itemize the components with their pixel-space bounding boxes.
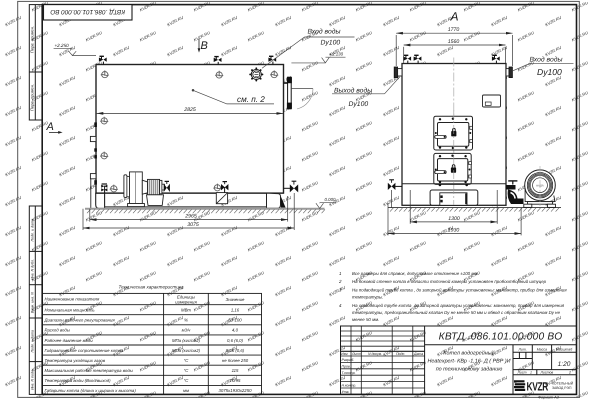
svg-text:по техническому заданию: по техническому заданию	[436, 366, 503, 372]
svg-text:ЗАВОД РЭП: ЗАВОД РЭП	[552, 386, 572, 390]
svg-text:мм: мм	[183, 388, 189, 393]
svg-text:Изм: Изм	[341, 352, 348, 356]
svg-text:Масштаб: Масштаб	[556, 347, 573, 351]
svg-text:см. п. 2: см. п. 2	[237, 95, 265, 104]
svg-text:МПа (кгс/см2): МПа (кгс/см2)	[172, 338, 201, 343]
svg-text:2965: 2965	[184, 214, 197, 220]
svg-text:1770: 1770	[448, 27, 460, 33]
svg-text:3075: 3075	[187, 222, 199, 228]
svg-text:Масса: Масса	[537, 347, 547, 351]
svg-text:А: А	[46, 121, 54, 133]
svg-text:Подп.: Подп.	[396, 352, 405, 356]
svg-text:115: 115	[232, 368, 239, 373]
svg-text:Т.контр.: Т.контр.	[342, 371, 356, 375]
svg-text:температуры, предохранительный: температуры, предохранительный клапан Dу…	[352, 310, 561, 315]
svg-text:Лист: Лист	[351, 352, 361, 356]
svg-text:Dy100: Dy100	[321, 40, 341, 47]
svg-text:Габариты котла (длина х ширина: Габариты котла (длина х ширина х высота)	[45, 388, 137, 393]
svg-text:70/95: 70/95	[230, 378, 241, 383]
svg-text:4,0: 4,0	[232, 328, 239, 333]
svg-text:Все размеры для справок, допус: Все размеры для справок, допустимое откл…	[352, 271, 479, 276]
svg-text:Инв. N подл.: Инв. N подл.	[31, 369, 35, 390]
svg-text:1560: 1560	[448, 39, 460, 45]
svg-text:Пров.: Пров.	[342, 364, 351, 368]
svg-text:Вход воды: Вход воды	[530, 56, 563, 63]
svg-text:не более 250: не более 250	[222, 358, 249, 363]
svg-text:Выход воды: Выход воды	[334, 87, 372, 94]
svg-text:Взам. инв. N: Взам. инв. N	[31, 292, 35, 313]
svg-text:N докум.: N докум.	[368, 352, 382, 356]
svg-text:Диапазон рабочего регулировани: Диапазон рабочего регулирования	[44, 318, 116, 323]
svg-text:Подп. и дата: Подп. и дата	[31, 219, 35, 242]
svg-text:Листов: Листов	[540, 371, 554, 375]
svg-text:Максимальная рабочая температу: Максимальная рабочая температура воды	[45, 368, 134, 373]
svg-text:Лист: Лист	[517, 371, 527, 375]
svg-text:+2.130: +2.130	[330, 51, 344, 56]
svg-text:Утв.: Утв.	[342, 390, 350, 394]
svg-text:Вход воды: Вход воды	[308, 29, 341, 36]
svg-text:1: 1	[530, 371, 532, 375]
svg-text:Гидравлическое сопротивление к: Гидравлическое сопротивление котла	[45, 348, 125, 353]
svg-text:измерения: измерения	[175, 300, 197, 305]
svg-text:2: 2	[338, 279, 342, 284]
svg-text:Наименование показателя: Наименование показателя	[45, 297, 101, 302]
svg-text:Значение: Значение	[226, 297, 245, 302]
svg-text:КОТЕЛЬНЫЙ: КОТЕЛЬНЫЙ	[552, 380, 574, 385]
svg-text:1:20: 1:20	[558, 361, 571, 368]
svg-text:0.000: 0.000	[325, 197, 337, 202]
svg-text:3075х1930х2250: 3075х1930х2250	[219, 388, 253, 393]
svg-text:температуры.: температуры.	[352, 295, 383, 300]
svg-text:1930: 1930	[448, 227, 460, 233]
svg-text:Расход воды: Расход воды	[45, 328, 71, 333]
svg-text:Техническая характеристика: Техническая характеристика	[118, 284, 183, 289]
svg-text:Подп. и дата: Подп. и дата	[31, 330, 35, 353]
svg-text:0,06 (0,6): 0,06 (0,6)	[226, 348, 245, 353]
svg-text:Температура воды (Вход/выход): Температура воды (Вход/выход)	[45, 378, 112, 383]
svg-text:KVZR: KVZR	[527, 379, 549, 393]
svg-text:КВТД .086.101.00.000 ВО: КВТД .086.101.00.000 ВО	[439, 332, 563, 343]
svg-text:Н.контр.: Н.контр.	[342, 384, 357, 388]
svg-text:Перв. примен.: Перв. примен.	[30, 84, 35, 111]
svg-text:Температура уходящих газов: Температура уходящих газов	[45, 358, 106, 363]
svg-text:Номинальная мощность: Номинальная мощность	[45, 308, 96, 313]
svg-text:МПа (кгс/см2): МПа (кгс/см2)	[172, 348, 201, 353]
svg-text:50-100: 50-100	[228, 318, 242, 323]
svg-text:Dy100: Dy100	[537, 67, 562, 77]
svg-text:Лит.: Лит.	[517, 347, 526, 351]
svg-text:менее 50 мм.: менее 50 мм.	[352, 317, 379, 322]
svg-text:На подводящей трубе котла ,: На подводящей трубе котла , до запорной …	[352, 288, 567, 293]
svg-text:А: А	[450, 10, 459, 24]
svg-text:м3/ч: м3/ч	[182, 328, 192, 333]
svg-text:+2.250: +2.250	[55, 43, 70, 48]
svg-text:Рабочее давление воды: Рабочее давление воды	[45, 338, 94, 343]
svg-text:На боковой стенке котла в обла: На боковой стенке котла в области топочн…	[352, 279, 547, 284]
svg-text:МВт: МВт	[181, 308, 191, 313]
svg-text:0,6 (6,0): 0,6 (6,0)	[227, 338, 244, 343]
svg-text:Разраб.: Разраб.	[342, 358, 355, 362]
svg-text:Дата: Дата	[413, 352, 423, 356]
svg-text:1,16: 1,16	[231, 308, 240, 313]
svg-text:На отводящей трубе котла ,до з: На отводящей трубе котла ,до запорной ар…	[352, 303, 565, 308]
svg-text:В: В	[201, 40, 208, 52]
svg-text:2: 2	[568, 371, 571, 375]
svg-text:Heatexpert- КВр -1,16- Д ( РВР: Heatexpert- КВр -1,16- Д ( РВР )И	[427, 358, 510, 364]
svg-text:2825: 2825	[183, 107, 196, 113]
svg-text:%: %	[184, 318, 188, 323]
svg-text:Инв. N дубл.: Инв. N дубл.	[31, 259, 35, 280]
svg-text:Котел водогрейный: Котел водогрейный	[443, 350, 494, 356]
svg-text:Перв. примен.: Перв. примен.	[30, 26, 35, 53]
svg-text:1300: 1300	[448, 216, 460, 222]
svg-text:КВТД .086.101.00.000 ВО: КВТД .086.101.00.000 ВО	[50, 8, 125, 15]
svg-text:Dy100: Dy100	[349, 101, 369, 108]
svg-text:Формат А3: Формат А3	[538, 396, 560, 400]
